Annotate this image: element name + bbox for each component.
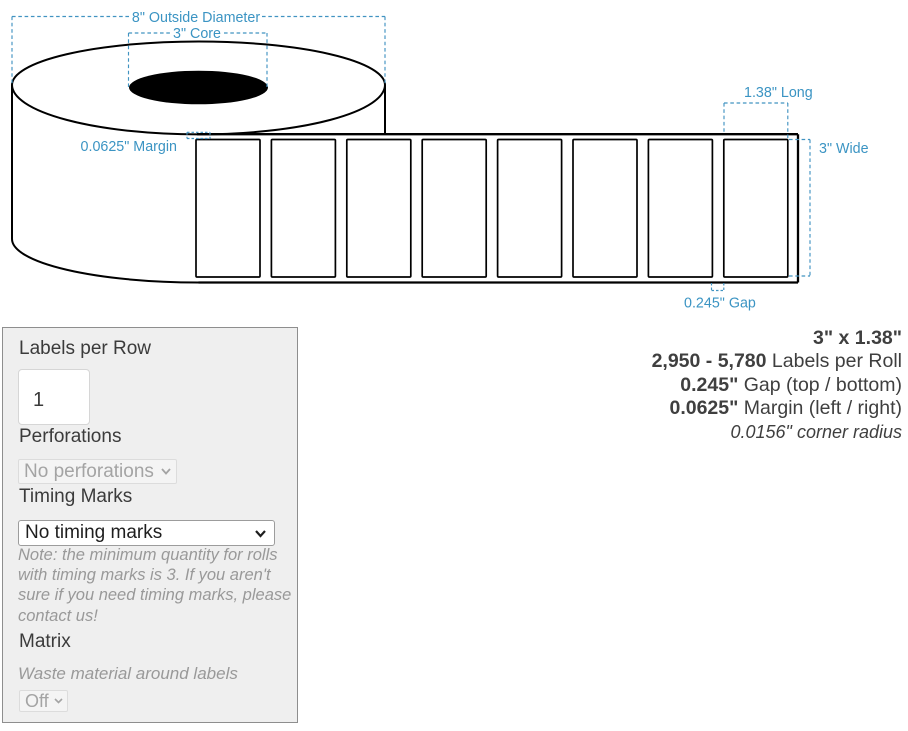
svg-text:3" Wide: 3" Wide [819, 141, 869, 157]
svg-text:3" Core: 3" Core [173, 26, 221, 42]
svg-text:0.0625" Margin: 0.0625" Margin [81, 139, 178, 155]
svg-text:8" Outside Diameter: 8" Outside Diameter [132, 10, 260, 26]
svg-text:0.245" Gap: 0.245" Gap [684, 296, 756, 312]
svg-text:1.38" Long: 1.38" Long [744, 85, 813, 101]
